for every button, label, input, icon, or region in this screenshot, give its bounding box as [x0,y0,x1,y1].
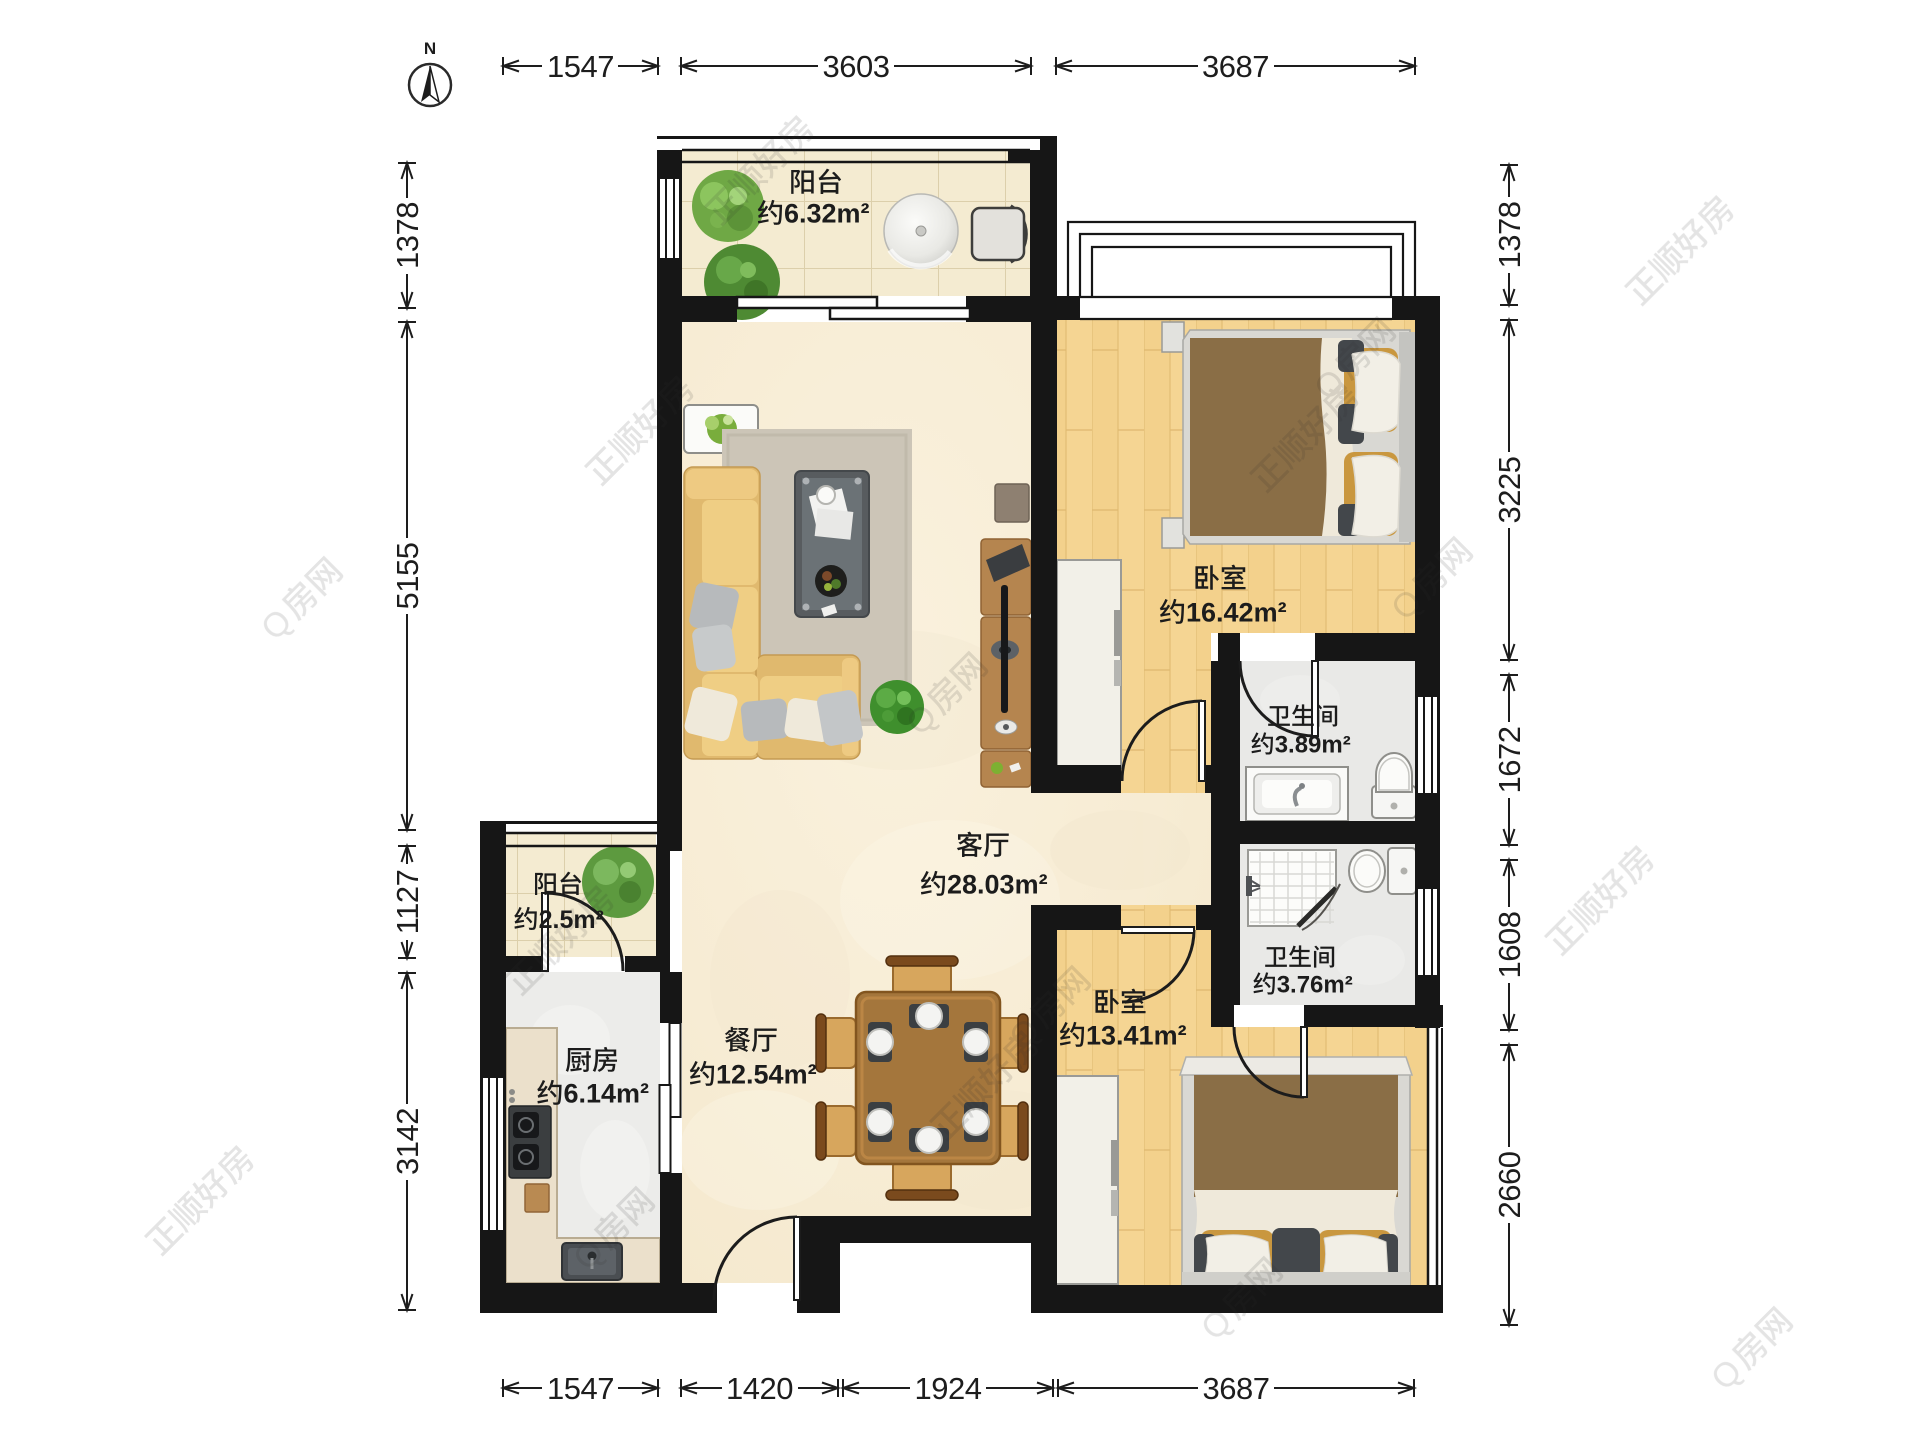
svg-text:1420: 1420 [726,1371,793,1406]
svg-text:3687: 3687 [1202,49,1269,84]
svg-text:16.42m²: 16.42m² [1186,598,1287,628]
svg-text:3225: 3225 [1492,457,1527,524]
svg-text:1547: 1547 [547,1371,614,1406]
svg-text:3.89m²: 3.89m² [1275,732,1351,759]
svg-text:1672: 1672 [1492,727,1527,794]
svg-text:3603: 3603 [823,49,890,84]
svg-text:28.03m²: 28.03m² [947,870,1048,900]
svg-text:N: N [424,39,436,58]
svg-text:1924: 1924 [915,1371,982,1406]
svg-text:2660: 2660 [1492,1151,1527,1218]
svg-text:6.32m²: 6.32m² [784,199,870,229]
svg-text:1547: 1547 [547,49,614,84]
svg-text:1378: 1378 [1492,202,1527,269]
svg-text:5155: 5155 [390,543,425,610]
svg-text:1378: 1378 [390,202,425,269]
svg-text:6.14m²: 6.14m² [564,1079,650,1109]
svg-text:13.41m²: 13.41m² [1086,1021,1187,1051]
svg-text:1127: 1127 [390,870,425,935]
svg-text:3142: 3142 [390,1108,425,1175]
svg-text:3687: 3687 [1203,1371,1270,1406]
svg-text:3.76m²: 3.76m² [1277,972,1353,999]
svg-text:1608: 1608 [1492,912,1527,979]
svg-text:12.54m²: 12.54m² [716,1060,817,1090]
